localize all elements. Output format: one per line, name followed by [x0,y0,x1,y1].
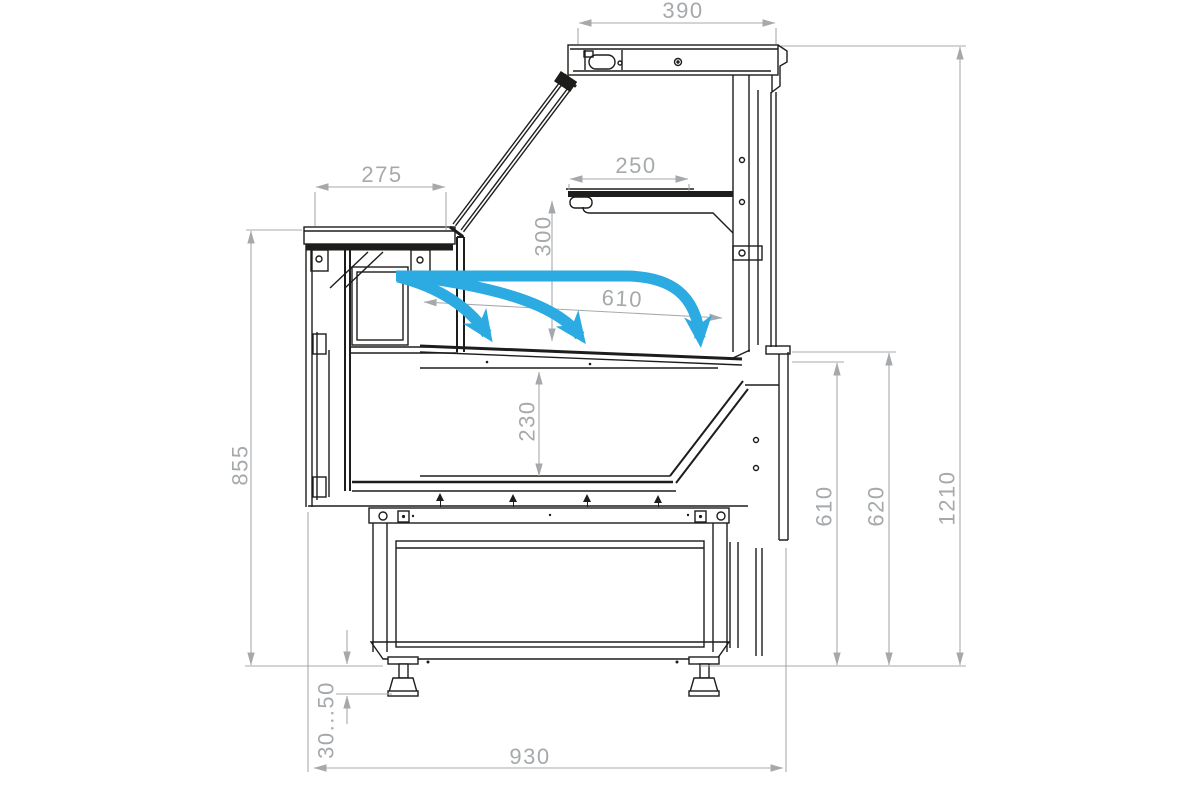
dim-label-shelf-depth: 250 [615,153,656,178]
shelf-light-icon [570,197,592,208]
dim-label-front-deck-height: 610 [812,485,837,526]
dim-label-well-depth: 230 [515,400,540,441]
sloped-glass [450,74,577,237]
dim-label-rear-worktop-height: 855 [228,444,253,485]
dim-label-overall-height: 1210 [935,471,960,526]
dimension-labels: 390 275 250 300 610 230 855 610 620 1210… [228,0,960,769]
front-column-and-shelf [566,75,762,358]
dim-label-canopy-width: 390 [662,0,703,23]
dim-label-overall-depth: 930 [509,744,550,769]
canopy-front-cap [772,45,787,92]
base-pedestal [369,508,762,664]
canopy [555,45,787,92]
adjustable-feet [388,657,719,696]
front-rail [745,346,790,540]
airflow-arrows [396,276,700,338]
door-hinge [313,334,326,354]
dim-label-foot-adjust-range: 30...50 [314,681,339,759]
door-hinge [313,477,326,497]
technical-drawing-canvas: 390 275 250 300 610 230 855 610 620 1210… [0,0,1200,800]
display-case-section-drawing: 390 275 250 300 610 230 855 610 620 1210… [0,0,1200,800]
case-bottom [308,491,748,507]
dim-label-rear-worktop-depth: 275 [361,162,402,187]
shelf-bracket [583,207,733,233]
dim-label-front-edge-height: 620 [864,485,889,526]
tie-bolts [436,493,662,507]
rear-wall-and-doors [306,244,350,507]
dim-label-deck-depth: 610 [601,285,643,312]
case-structure [304,45,790,696]
front-glass [758,90,776,347]
dim-label-shelf-to-deck: 300 [531,215,556,256]
